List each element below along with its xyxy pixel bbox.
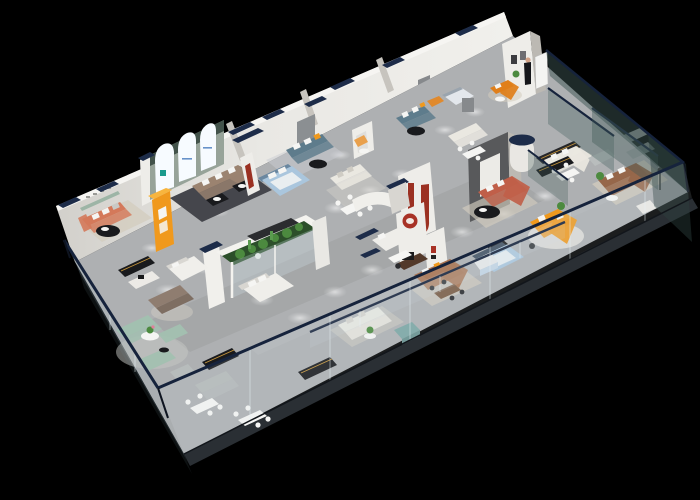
showroom-floorplan-render	[0, 0, 700, 500]
art-frame-dark	[511, 55, 517, 64]
round-table-black	[309, 160, 327, 169]
coffee-table-black	[96, 225, 120, 237]
art-frame	[462, 98, 474, 112]
art-frame-gray	[520, 51, 526, 60]
logo-plaque-black	[431, 255, 436, 259]
plant	[596, 172, 604, 180]
plant	[557, 202, 565, 210]
logo-blue-line	[182, 158, 192, 160]
side-table-black	[159, 348, 169, 353]
logo-blue-line-2	[203, 147, 212, 149]
table-tray	[101, 227, 109, 231]
plant-top	[513, 71, 520, 78]
tray	[479, 208, 487, 212]
render-canvas	[0, 0, 700, 500]
round-table-white	[495, 97, 505, 102]
logo-plaque-red	[431, 246, 436, 253]
presentation-board	[535, 52, 548, 89]
oval-table-black	[474, 206, 500, 219]
logo-teal-mark	[160, 170, 166, 176]
round-table-black-top	[407, 127, 425, 136]
navy-disc-top	[509, 135, 535, 146]
